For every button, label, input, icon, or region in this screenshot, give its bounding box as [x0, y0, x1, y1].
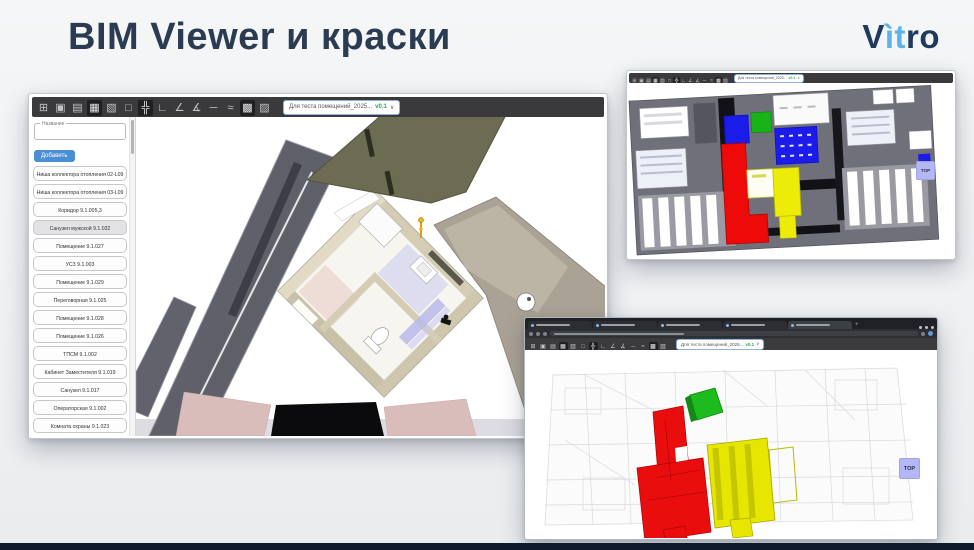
sidebar-scrollbar[interactable] — [129, 117, 135, 436]
window-controls[interactable] — [919, 326, 934, 329]
room-item-label: Помещение 9.1.027 — [35, 244, 125, 251]
room-list-item[interactable]: -ТПСМ 9.1.002 — [33, 346, 127, 361]
model-selector-label: Для теста помещений_2025... — [738, 76, 787, 80]
room-list-item-selected[interactable]: -Санузел мужской 9.1.032 — [33, 220, 127, 235]
model-version-badge: v0.1 — [789, 76, 796, 80]
red-room-notch — [675, 446, 688, 462]
screenshot-icon[interactable]: ▩ — [240, 100, 255, 116]
room-green — [751, 112, 772, 133]
ghost-plan-model — [525, 350, 935, 538]
browser-window: + ⊞▣▤▦▧□╬∟∠∡─≈▩▨ Для теста помещений_202… — [524, 317, 938, 540]
measure-angle-open-icon[interactable]: ∡ — [189, 100, 204, 116]
model-selector-dropdown[interactable]: Для теста помещений_2025... v0.1 ∨ — [676, 339, 764, 350]
room-list-item[interactable]: -Помещение 9.1.028 — [33, 310, 127, 325]
logo-part: ìt — [885, 18, 906, 55]
name-filter-field: Название — [34, 123, 126, 140]
room-list-item[interactable]: -Помещение 9.1.026 — [33, 328, 127, 343]
room-item-label: Помещение 9.1.026 — [35, 334, 125, 341]
browser-tab[interactable] — [593, 321, 657, 329]
slide-footer-bar — [0, 543, 974, 550]
room-list-item[interactable]: -Помещение 9.1.029 — [33, 274, 127, 289]
room-item-label: Санузел мужской 9.1.032 — [35, 226, 125, 233]
room-item-label: Помещение 9.1.029 — [35, 280, 125, 287]
room-item-label: ТПСМ 9.1.002 — [35, 352, 125, 359]
plan-3d-viewport[interactable]: TOP — [627, 83, 955, 257]
room-list-item[interactable]: -Санузел 9.1.017 — [33, 382, 127, 397]
room-item-label: Помещение 9.1.028 — [35, 316, 125, 323]
ghost-3d-viewport[interactable]: TOP — [525, 350, 937, 538]
chevron-down-icon: ∨ — [756, 341, 759, 347]
red-fragment — [675, 530, 689, 536]
room-list-item[interactable]: -Помещение 9.1.027 — [33, 238, 127, 253]
model-version-badge: v0.1 — [745, 342, 754, 347]
browser-tab[interactable] — [723, 321, 787, 329]
model-selector-dropdown[interactable]: Для теста помещений_2025... v0.1 ∨ — [283, 100, 400, 115]
olive-ceiling-slab — [307, 117, 508, 203]
plan-view-window: ⊞▣▤▦▧□╬∟∠∡─≈▩▨ Для теста помещений_2025.… — [626, 70, 956, 260]
vitro-logo: Vìtro — [862, 18, 940, 56]
select-object-icon[interactable]: ▣ — [53, 100, 68, 116]
move-axes-icon[interactable]: ╬ — [138, 100, 153, 116]
new-tab-button[interactable]: + — [855, 321, 859, 329]
model-selector-label: Для теста помещений_2025... — [681, 342, 743, 347]
pink-slab-left — [176, 392, 271, 436]
room-yellow — [773, 167, 801, 216]
view-cube-top[interactable]: TOP — [916, 161, 935, 180]
browser-tab[interactable] — [658, 321, 722, 329]
room-list-item[interactable]: -Ниша коллектора отопления 03-L09 — [33, 184, 127, 199]
shaft-opening — [271, 402, 384, 436]
room-list-item[interactable]: -Кабинет Заместителя 9.1.019 — [33, 364, 127, 379]
pink-slab-right — [384, 399, 476, 436]
section-box-icon[interactable]: ▦ — [87, 100, 102, 116]
room-item-label: Кабинет Заместителя 9.1.019 — [35, 370, 125, 377]
round-sink — [517, 293, 535, 311]
room-item-label: Операторская 9.1.002 — [35, 406, 125, 413]
logo-part: ro — [906, 18, 940, 55]
browser-tab-active[interactable] — [788, 321, 852, 329]
room-white-outline — [747, 169, 774, 198]
room-item-label: Санузел 9.1.017 — [35, 388, 125, 395]
rooms-sidebar: Название Добавить -Ниша коллектора отопл… — [29, 117, 136, 436]
room-item-label: Ниша коллектора отопления 03-L09 — [35, 190, 125, 197]
extensions-icon[interactable] — [921, 332, 925, 336]
model-selector-dropdown[interactable]: Для теста помещений_2025... v0.1 ∨ — [734, 74, 804, 83]
plan-model — [627, 83, 953, 257]
chevron-down-icon: ∨ — [797, 76, 800, 80]
room-list: -Ниша коллектора отопления 02-L09 -Ниша … — [33, 166, 127, 433]
viewer-toolbar-small: ⊞▣▤▦▧□╬∟∠∡─≈▩▨ Для теста помещений_2025.… — [629, 73, 953, 83]
hide-object-icon[interactable]: ▤ — [70, 100, 85, 116]
paint-brush-icon[interactable]: ▨ — [257, 100, 272, 116]
room-list-item[interactable]: -УСЗ 9.1.003 — [33, 256, 127, 271]
add-button[interactable]: Добавить — [34, 150, 75, 162]
room-item-label: Коридор 9.1.005,3 — [35, 208, 125, 215]
room-item-label: Ниша коллектора отопления 02-L09 — [35, 172, 125, 179]
viewer-toolbar-small: ⊞▣▤▦▧□╬∟∠∡─≈▩▨ Для теста помещений_2025.… — [525, 338, 937, 350]
profile-avatar[interactable] — [928, 331, 933, 336]
measure-corner-icon[interactable]: ∟ — [155, 100, 170, 116]
room-item-label: Переговорная 9.1.025 — [35, 298, 125, 305]
room-blue-small — [724, 115, 749, 144]
chevron-down-icon: ∨ — [390, 104, 394, 111]
model-version-badge: v0.1 — [375, 104, 387, 110]
browser-tab[interactable] — [528, 321, 592, 329]
room-list-item[interactable]: -Ниша коллектора отопления 02-L09 — [33, 166, 127, 181]
model-selector-label: Для теста помещений_2025... — [289, 104, 372, 110]
measure-angle-icon[interactable]: ∠ — [172, 100, 187, 116]
browser-tab-bar: + — [525, 318, 937, 329]
view-cube-top[interactable]: TOP — [899, 458, 920, 479]
room-list-item[interactable]: -Переговорная 9.1.025 — [33, 292, 127, 307]
room-item-label: Комната охраны 9.1.023 — [35, 424, 125, 431]
room-list-item[interactable]: -Операторская 9.1.002 — [33, 400, 127, 415]
name-filter-label: Название — [40, 121, 66, 127]
bim-viewer-window: ⊞▣▤▦▧□╬∟∠∡─≈▩▨ Для теста помещений_2025.… — [28, 93, 608, 439]
logo-part: V — [862, 18, 885, 55]
room-list-item[interactable]: -Коридор 9.1.005,3 — [33, 202, 127, 217]
fit-view-icon[interactable]: ⊞ — [36, 100, 51, 116]
page-title: BIM Viewer и краски — [68, 16, 451, 59]
wireframe-icon[interactable]: □ — [121, 100, 136, 116]
measure-curve-icon[interactable]: ≈ — [223, 100, 238, 116]
toolbar-icons: ⊞▣▤▦▧□╬∟∠∡─≈▩▨ — [35, 98, 273, 116]
viewer-toolbar: ⊞▣▤▦▧□╬∟∠∡─≈▩▨ Для теста помещений_2025.… — [32, 97, 604, 117]
room-item-label: УСЗ 9.1.003 — [35, 262, 125, 269]
clip-plane-icon[interactable]: ▧ — [104, 100, 119, 116]
measure-line-icon[interactable]: ─ — [206, 100, 221, 116]
room-list-item[interactable]: -Комната охраны 9.1.023 — [33, 418, 127, 433]
name-filter-input[interactable] — [35, 128, 111, 145]
